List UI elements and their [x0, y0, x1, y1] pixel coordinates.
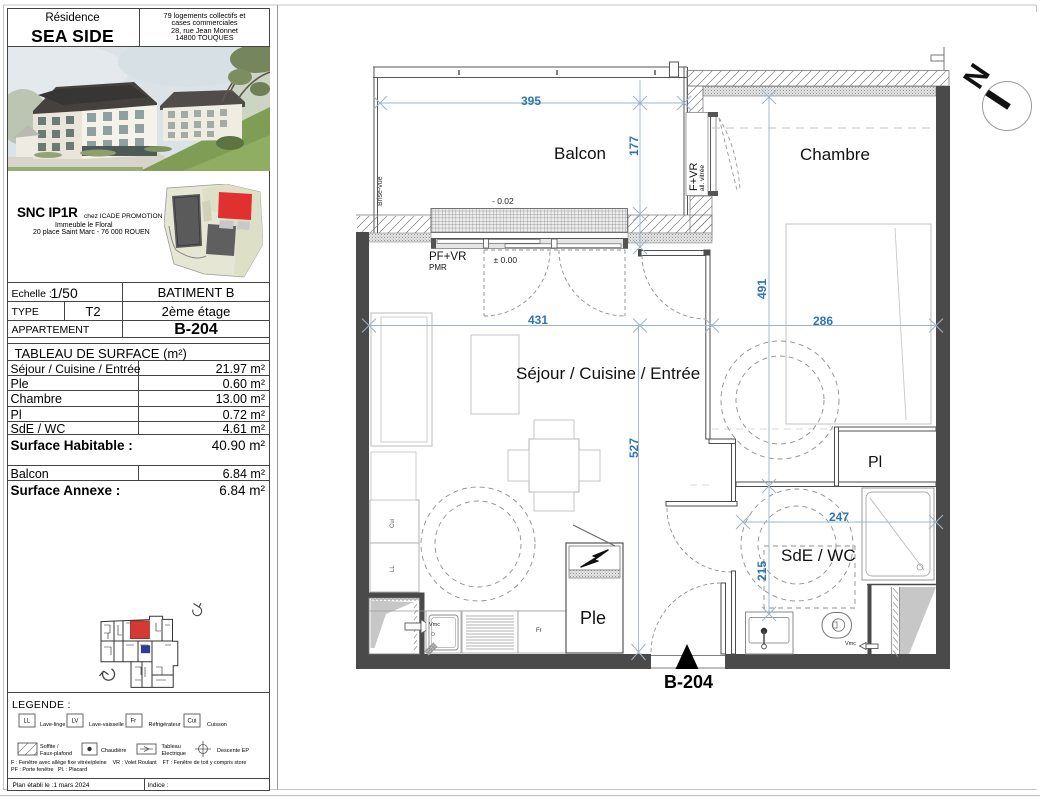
svg-text:N: N	[957, 58, 996, 94]
svg-text:Cui: Cui	[187, 719, 196, 725]
svg-text:Fr: Fr	[130, 719, 136, 725]
svg-text:LL: LL	[23, 719, 30, 725]
svg-text:LV: LV	[71, 719, 78, 725]
